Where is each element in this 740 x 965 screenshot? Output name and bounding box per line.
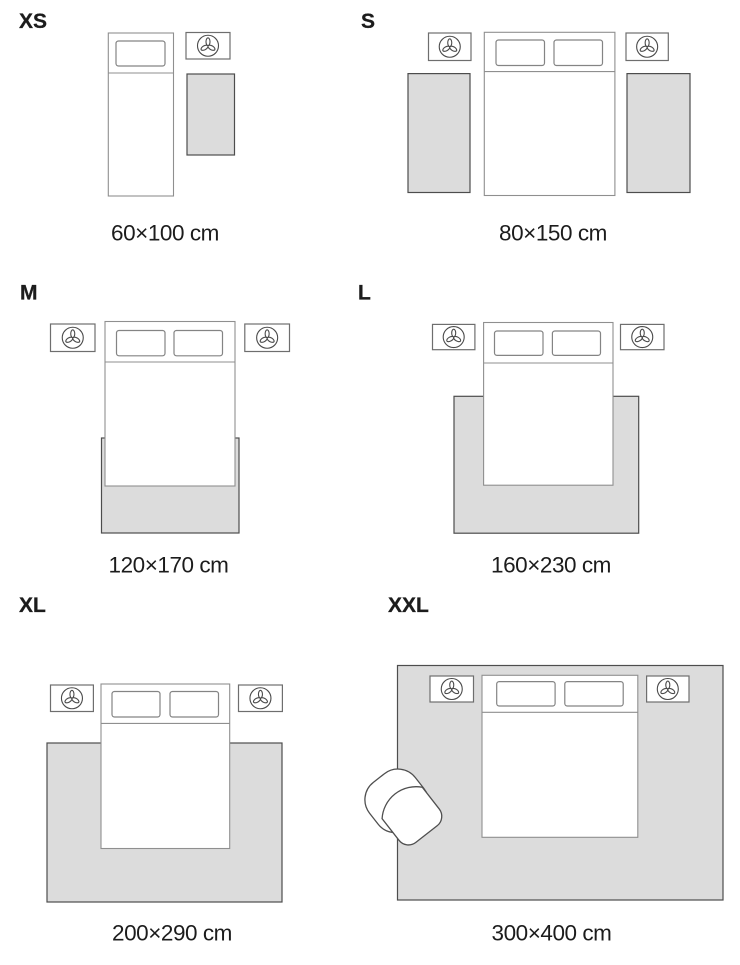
svg-text:XS: XS — [19, 10, 47, 33]
svg-text:160×230 cm: 160×230 cm — [491, 553, 611, 578]
svg-text:120×170 cm: 120×170 cm — [109, 553, 229, 578]
svg-text:300×400 cm: 300×400 cm — [492, 921, 612, 946]
svg-text:XXL: XXL — [388, 594, 429, 617]
svg-text:200×290 cm: 200×290 cm — [112, 921, 232, 946]
svg-text:S: S — [361, 10, 375, 33]
svg-text:80×150 cm: 80×150 cm — [499, 221, 607, 246]
svg-text:60×100 cm: 60×100 cm — [111, 221, 219, 246]
svg-text:XL: XL — [19, 594, 46, 617]
svg-text:M: M — [20, 282, 38, 305]
svg-text:L: L — [358, 282, 371, 305]
